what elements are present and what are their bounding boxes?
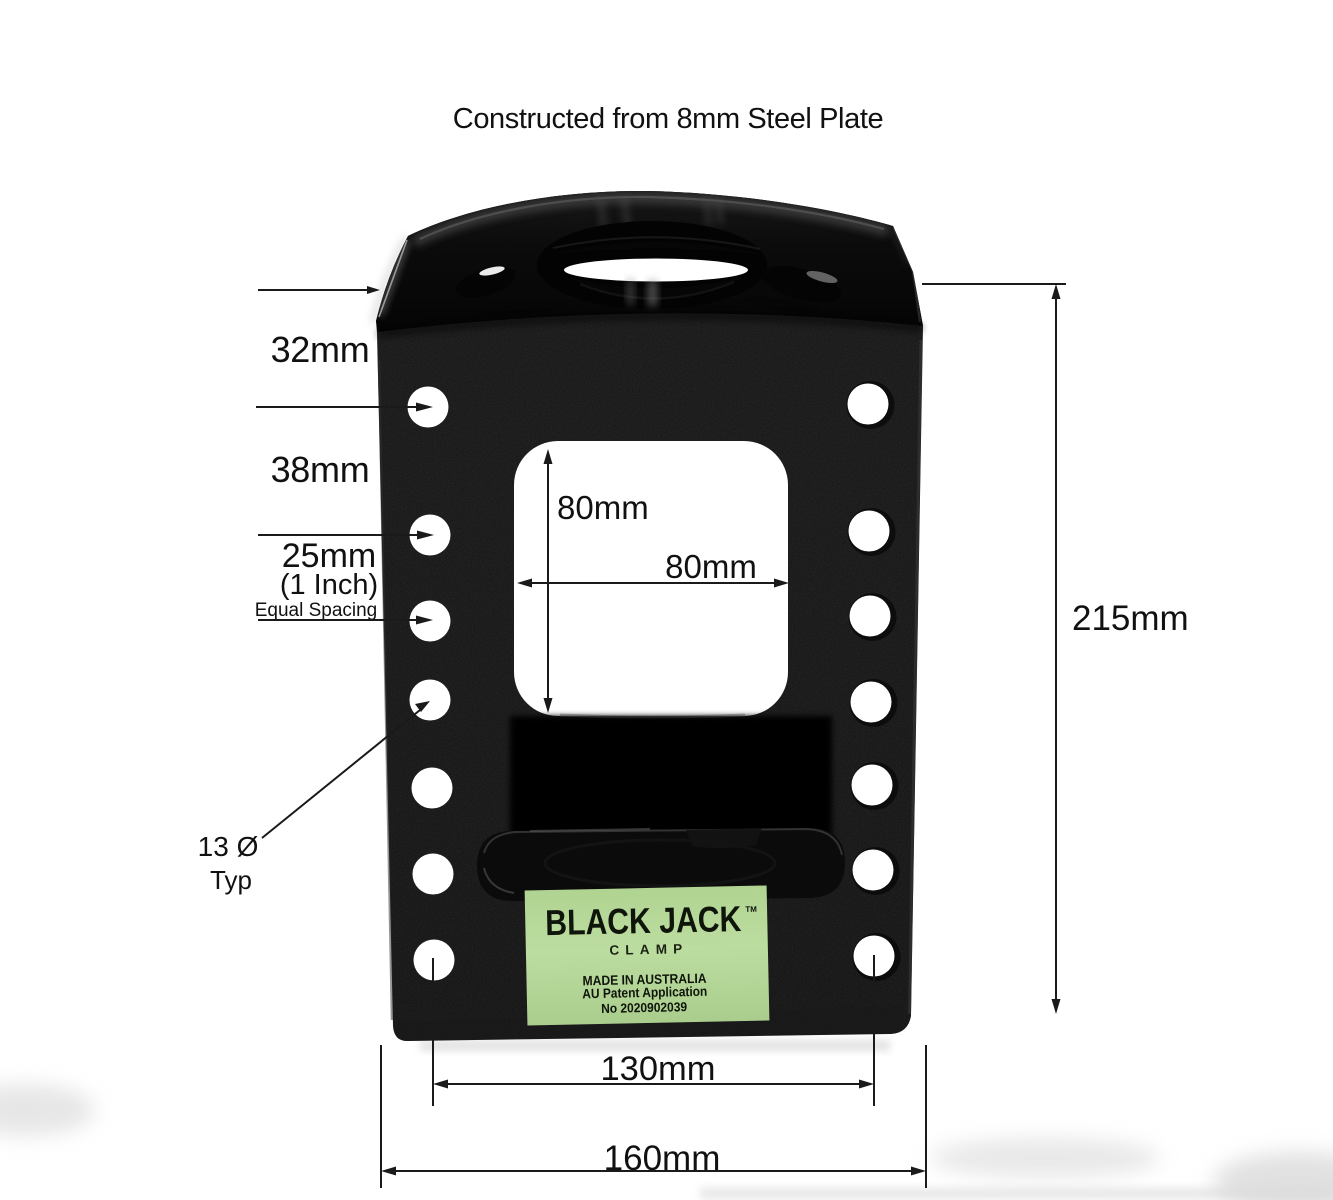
svg-text:Typ: Typ: [210, 865, 252, 895]
svg-text:13 Ø: 13 Ø: [198, 831, 259, 862]
svg-text:32mm: 32mm: [271, 329, 370, 370]
svg-text:80mm: 80mm: [557, 489, 649, 526]
svg-text:(1 Inch): (1 Inch): [280, 569, 378, 601]
svg-text:215mm: 215mm: [1072, 599, 1189, 638]
svg-text:130mm: 130mm: [600, 1050, 715, 1088]
svg-text:Constructed from 8mm Steel Pla: Constructed from 8mm Steel Plate: [453, 103, 883, 135]
svg-text:AU Patent Application: AU Patent Application: [582, 984, 707, 1002]
svg-text:80mm: 80mm: [665, 548, 757, 585]
svg-text:BLACK JACK: BLACK JACK: [545, 898, 742, 943]
svg-text:TM: TM: [745, 905, 757, 914]
svg-text:CLAMP: CLAMP: [609, 941, 688, 958]
svg-text:160mm: 160mm: [604, 1139, 721, 1178]
svg-text:No 2020902039: No 2020902039: [601, 999, 687, 1016]
svg-text:38mm: 38mm: [271, 449, 370, 490]
svg-text:Equal Spacing: Equal Spacing: [255, 600, 378, 621]
